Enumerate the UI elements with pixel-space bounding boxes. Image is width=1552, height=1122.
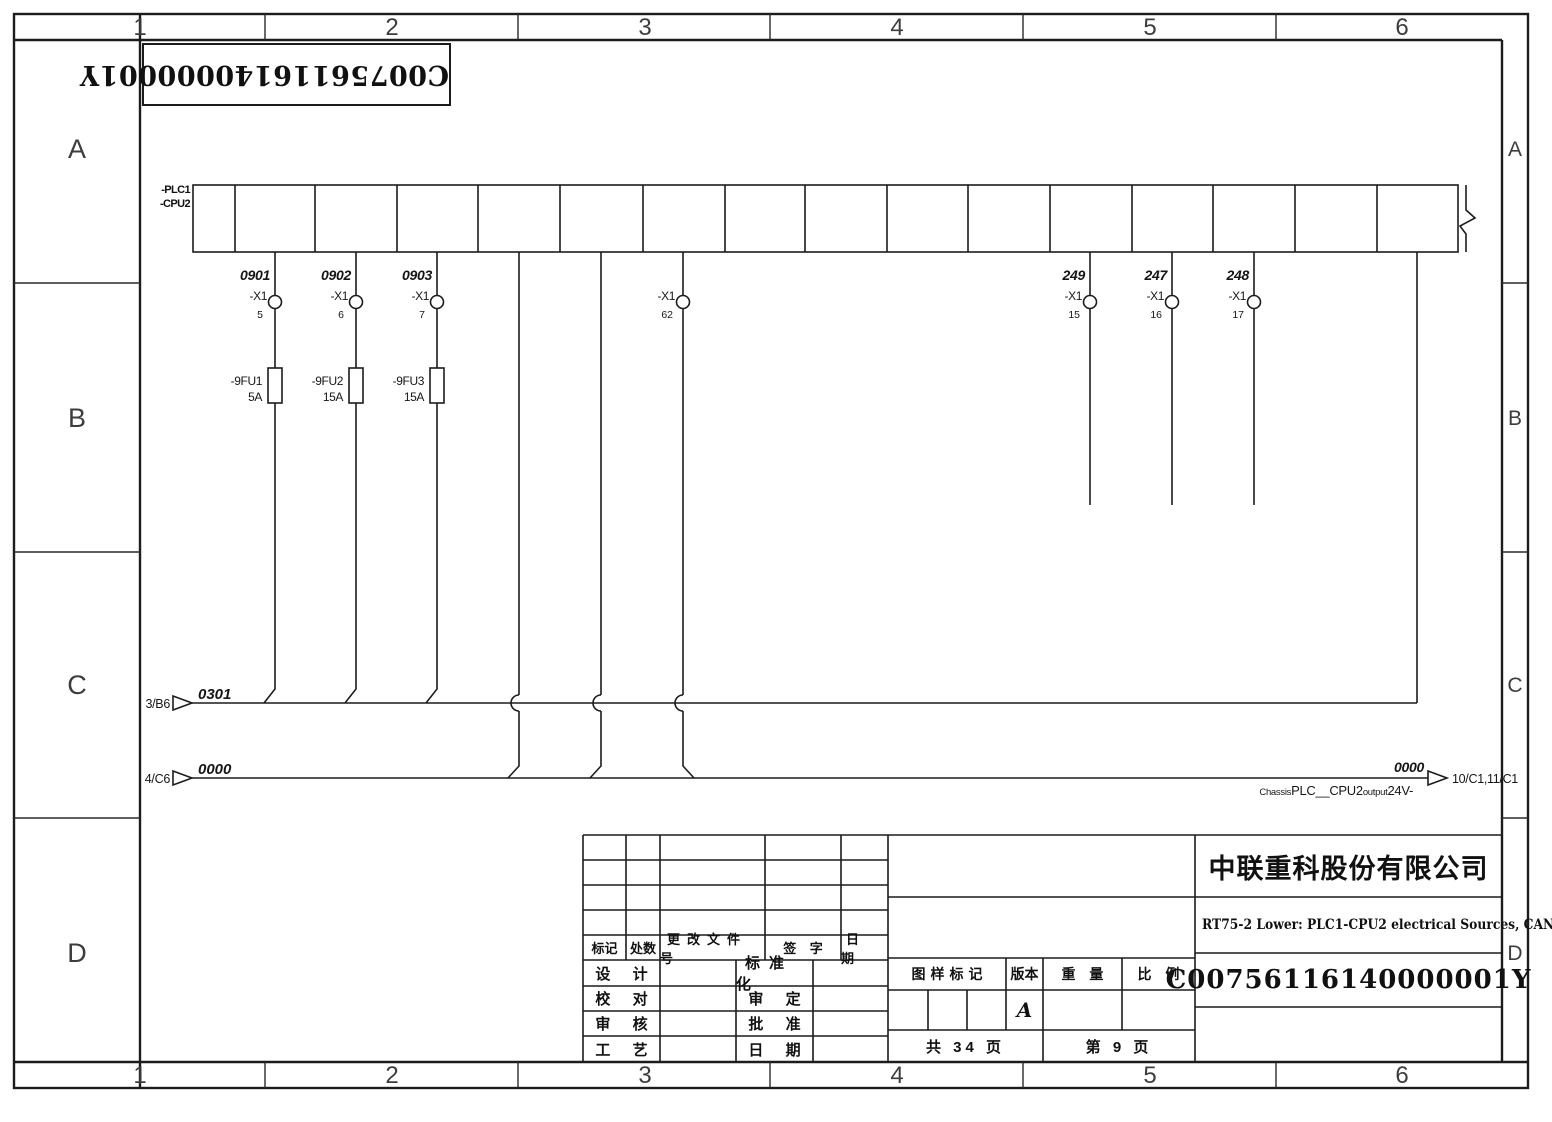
plc-name-line2: -CPU2 [160, 198, 190, 212]
zone-col-top-5: 5 [1143, 14, 1156, 41]
zone-row-right-a: A [1508, 138, 1522, 161]
zone-row-right-d: D [1507, 942, 1522, 965]
terminal-pin-6: 6 [338, 309, 344, 321]
rev-header-date: 日 期 [841, 935, 888, 960]
zone-row-right-c: C [1507, 674, 1522, 697]
terminal-name-x1-17: -X1 [1229, 289, 1247, 303]
zone-row-left-b: B [68, 403, 86, 433]
zone-col-top-6: 6 [1395, 14, 1408, 41]
stamp-header-version: 版本 [1006, 958, 1043, 990]
fuse-name-9fu1: -9FU1 [231, 374, 263, 388]
fuse-name-9fu2: -9FU2 [312, 374, 344, 388]
zone-row-left-c: C [67, 670, 87, 700]
terminal-name-x1-15: -X1 [1065, 289, 1083, 303]
bus-0301-label: 0301 [198, 686, 231, 703]
zone-col-top-3: 3 [638, 14, 651, 41]
rev-header-count: 处数 [626, 935, 660, 960]
drawing-sheet: 1 2 3 4 5 6 1 2 3 4 5 6 A B C D A B C D [0, 0, 1552, 1122]
bus-0000-source-ref: 4/C6 [145, 772, 171, 786]
drawing-number-rotated: C00756116140000001Y [144, 59, 449, 90]
terminal-circle-x1-15 [1084, 296, 1097, 309]
wire-number-247: 247 [1144, 267, 1169, 283]
zone-row-left-a: A [68, 134, 86, 164]
rev-header-mark: 标记 [583, 935, 626, 960]
zone-col-top-2: 2 [385, 14, 398, 41]
sign-label-standardization: 标准化 [736, 960, 813, 986]
bus-lines [173, 696, 1447, 785]
terminal-name-x1-6: -X1 [331, 289, 349, 303]
plc-device-name: -PLC1 -CPU2 [128, 184, 190, 218]
wire-0903 [426, 252, 437, 703]
drawing-number: C00756116140000001Y [1195, 953, 1502, 1007]
fuse-rating-9fu1: 5A [248, 390, 262, 404]
terminal-name-x1-7: -X1 [412, 289, 430, 303]
zone-col-top-4: 4 [890, 14, 903, 41]
wire-0901 [264, 252, 275, 703]
terminal-name-x1-5: -X1 [250, 289, 268, 303]
terminal-pin-16: 16 [1150, 309, 1162, 321]
wire-number-0902: 0902 [321, 267, 351, 283]
fuse-name-9fu3: -9FU3 [393, 374, 425, 388]
sign-label-check: 校 对 [583, 986, 660, 1011]
total-pages: 共 34 页 [888, 1030, 1043, 1062]
terminal-name-x1-62: -X1 [658, 289, 676, 303]
zone-col-top-1: 1 [133, 14, 146, 41]
terminal-pin-7: 7 [419, 309, 425, 321]
bus-0000-end-label: 0000 [1394, 759, 1424, 775]
plc-block [193, 185, 1475, 252]
zone-col-bot-6: 6 [1395, 1062, 1408, 1089]
bus-0000-signal-note: ChassisPLC__CPU2output24V- [1259, 783, 1413, 798]
bus-0000-label: 0000 [198, 761, 232, 778]
zone-col-bot-3: 3 [638, 1062, 651, 1089]
sign-label-review: 审 核 [583, 1011, 660, 1036]
drawing-title: RT75-2 Lower: PLC1-CPU2 electrical Sourc… [1195, 897, 1509, 953]
terminal-circle-x1-17 [1248, 296, 1261, 309]
fuse-symbol-9fu2 [349, 368, 363, 403]
schematic-labels: 0901 -X1 5 -9FU1 5A 0902 -X1 6 -9FU2 15A… [145, 267, 1519, 798]
wire-mid-1 [508, 252, 519, 778]
terminal-circle-x1-5 [269, 296, 282, 309]
version-value: A [1006, 990, 1043, 1030]
source-arrow-0301 [173, 696, 192, 710]
zone-col-bot-2: 2 [385, 1062, 398, 1089]
wire-number-0903: 0903 [402, 267, 432, 283]
zone-row-right-b: B [1508, 407, 1522, 430]
stamp-header-weight: 重 量 [1043, 958, 1122, 990]
zone-col-bot-1: 1 [133, 1062, 146, 1089]
terminal-pin-17: 17 [1232, 309, 1244, 321]
terminal-circle-x1-6 [350, 296, 363, 309]
source-arrow-0000 [173, 771, 192, 785]
zone-col-bot-5: 5 [1143, 1062, 1156, 1089]
sign-label-process: 工 艺 [583, 1036, 660, 1062]
current-page: 第 9 页 [1043, 1030, 1195, 1062]
terminal-circle-x1-7 [431, 296, 444, 309]
wire-mid-2 [590, 252, 601, 778]
zone-col-bot-4: 4 [890, 1062, 903, 1089]
dest-arrow-0000 [1428, 771, 1447, 785]
sign-label-date: 日 期 [736, 1036, 813, 1062]
sign-label-approve: 批 准 [736, 1011, 813, 1036]
stamp-header-mark: 图样标记 [888, 958, 1006, 990]
fuse-rating-9fu2: 15A [323, 390, 344, 404]
sign-label-design: 设 计 [583, 960, 660, 986]
wires [264, 252, 1417, 778]
zone-row-left-d: D [67, 938, 87, 968]
plc-name-line1: -PLC1 [161, 184, 190, 198]
wire-number-249: 249 [1062, 267, 1086, 283]
sign-label-examine: 审 定 [736, 986, 813, 1011]
fuse-symbol-9fu1 [268, 368, 282, 403]
wire-number-0901: 0901 [240, 267, 270, 283]
break-symbol [1460, 185, 1475, 252]
fuse-rating-9fu3: 15A [404, 390, 425, 404]
fuse-symbol-9fu3 [430, 368, 444, 403]
bus-0301-source-ref: 3/B6 [145, 697, 170, 711]
terminal-circle-x1-16 [1166, 296, 1179, 309]
terminal-circle-x1-62 [677, 296, 690, 309]
wire-x1-62 [683, 252, 694, 778]
company-name: 中联重科股份有限公司 [1195, 835, 1502, 897]
bus-0000-dest-ref: 10/C1,11/C1 [1452, 772, 1518, 786]
wire-number-248: 248 [1226, 267, 1250, 283]
wire-0902 [345, 252, 356, 703]
terminal-pin-15: 15 [1068, 309, 1080, 321]
terminal-name-x1-16: -X1 [1147, 289, 1165, 303]
terminal-pin-62: 62 [661, 309, 673, 321]
drawing-number-box: C00756116140000001Y [142, 43, 451, 106]
terminal-pin-5: 5 [257, 309, 263, 321]
